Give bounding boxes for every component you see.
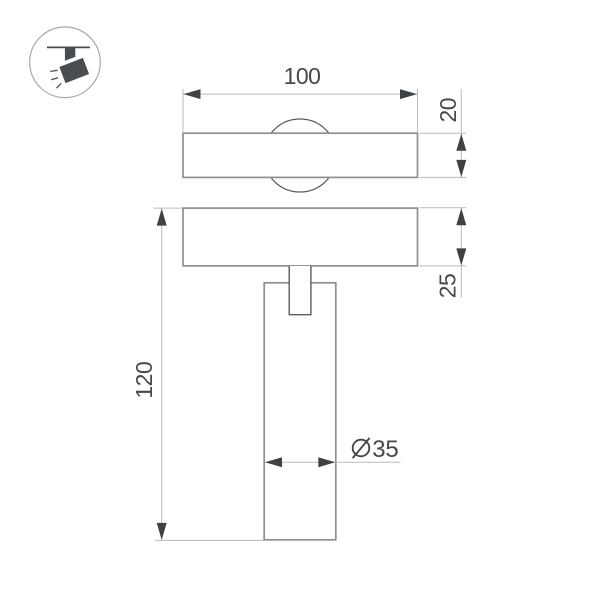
svg-text:25: 25 [435, 274, 461, 299]
svg-text:20: 20 [435, 98, 461, 123]
svg-text:35: 35 [372, 436, 398, 463]
svg-text:100: 100 [284, 63, 321, 89]
svg-text:120: 120 [131, 362, 157, 399]
